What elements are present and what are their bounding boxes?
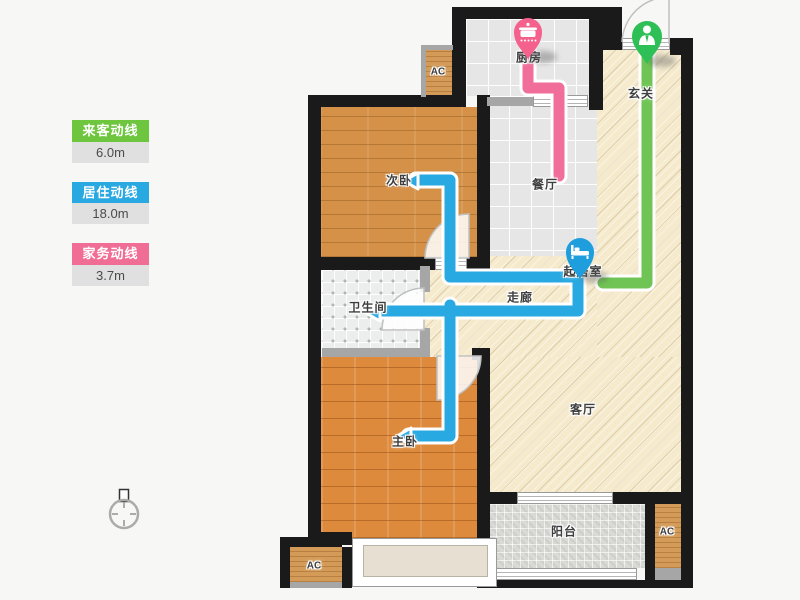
master-bay-window <box>352 538 497 587</box>
wall-segment <box>645 504 655 580</box>
balcony-label: 阳台 <box>551 523 577 540</box>
wall-segment <box>342 547 352 588</box>
low-wall-segment <box>420 328 430 348</box>
wall-segment <box>477 580 693 588</box>
second-bedroom-label: 次卧 <box>386 172 412 189</box>
wall-segment <box>308 257 435 270</box>
legend-visitor-label: 来客动线 <box>72 120 149 142</box>
legend-housework-label: 家务动线 <box>72 243 149 265</box>
entry-door-sill <box>622 38 670 50</box>
compass-icon <box>110 490 138 529</box>
wall-segment <box>477 95 490 257</box>
low-wall-segment <box>421 45 426 97</box>
livingroom-floor <box>488 357 681 492</box>
entrance-label: 玄关 <box>628 85 654 102</box>
legend-resident-label: 居住动线 <box>72 182 149 204</box>
wall-segment <box>452 7 601 19</box>
wall-segment <box>589 7 622 50</box>
wall-segment <box>308 95 466 107</box>
low-wall-segment <box>420 266 430 292</box>
balcony-door-window <box>517 492 613 504</box>
bathroom-label: 卫生间 <box>348 299 387 316</box>
legend-visitor-value: 6.0m <box>72 142 149 163</box>
balcony-window <box>488 568 637 580</box>
wall-segment <box>280 537 342 547</box>
ac-label-bottom-right: AC <box>660 527 674 538</box>
low-wall-segment <box>487 97 533 106</box>
legend-resident-value: 18.0m <box>72 203 149 224</box>
kitchen-label: 厨房 <box>516 49 542 66</box>
wall-segment <box>681 43 693 588</box>
floorplan-canvas: 来客动线 6.0m 居住动线 18.0m 家务动线 3.7m <box>0 0 800 600</box>
wall-segment <box>477 492 517 504</box>
low-wall-segment <box>655 568 681 580</box>
wall-segment <box>452 7 466 107</box>
wall-segment <box>613 492 693 504</box>
living-start-label: 起居室 <box>563 263 602 280</box>
wall-segment <box>467 257 490 270</box>
ac-label-bottom-left: AC <box>307 561 321 572</box>
low-wall-segment <box>322 348 430 357</box>
legend-housework-value: 3.7m <box>72 265 149 286</box>
master-bedroom-label: 主卧 <box>392 433 418 450</box>
wall-segment <box>589 50 603 110</box>
low-wall-segment <box>290 582 342 588</box>
livingroom-label: 客厅 <box>570 401 596 418</box>
kitchen-window <box>533 95 588 107</box>
corridor-label: 走廊 <box>507 289 533 306</box>
wall-segment <box>308 95 321 545</box>
second-bedroom-door-sill <box>435 257 467 270</box>
ac-label-top: AC <box>431 67 445 78</box>
dining-label: 餐厅 <box>532 176 558 193</box>
bay-window-panel <box>363 545 488 577</box>
